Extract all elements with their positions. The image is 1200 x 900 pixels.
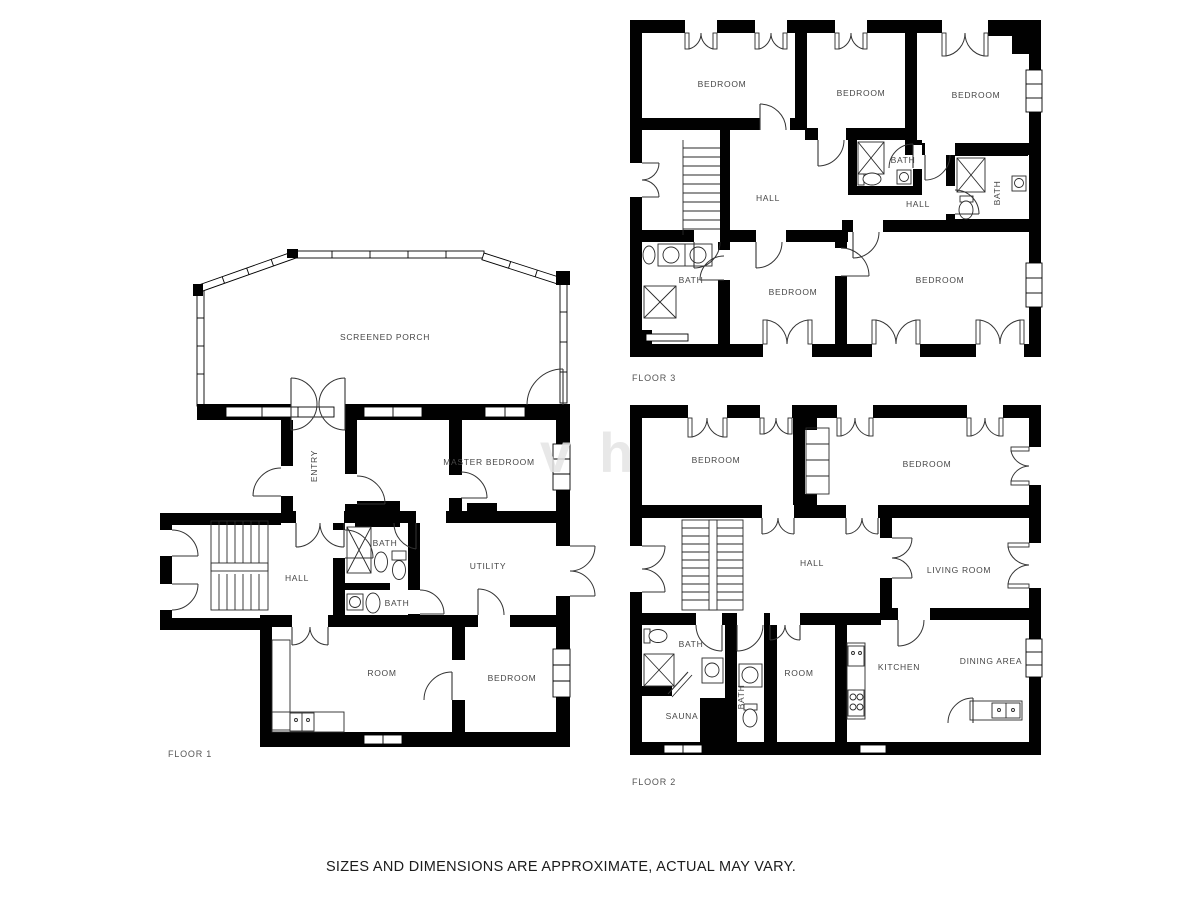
stairs-floor-1 <box>211 521 268 610</box>
porch-wall-slope-right <box>482 253 565 286</box>
floor-1-plan <box>160 249 595 747</box>
stairs-floor-3 <box>683 140 720 235</box>
kitchenette-floor-1 <box>272 640 344 732</box>
floor-3-plan <box>630 20 1042 357</box>
floor-plan-page: vh SCREENED PORCHENTRYMASTER BEDROOMHALL… <box>0 0 1200 900</box>
floor-2-plan <box>630 405 1042 755</box>
stairs-floor-2 <box>682 520 743 610</box>
ladder-floor-2 <box>806 428 829 494</box>
floor-plan-canvas <box>0 0 1200 900</box>
casement-windows-floor-3-bottom <box>763 320 1024 357</box>
kitchen-fixtures-floor-2 <box>847 643 1022 720</box>
windows-floor-2-right <box>1008 447 1042 677</box>
porch-wall-slope-left <box>198 251 296 292</box>
disclaimer-text: SIZES AND DIMENSIONS ARE APPROXIMATE, AC… <box>326 859 796 875</box>
bath-fixtures-floor-1 <box>347 527 406 613</box>
